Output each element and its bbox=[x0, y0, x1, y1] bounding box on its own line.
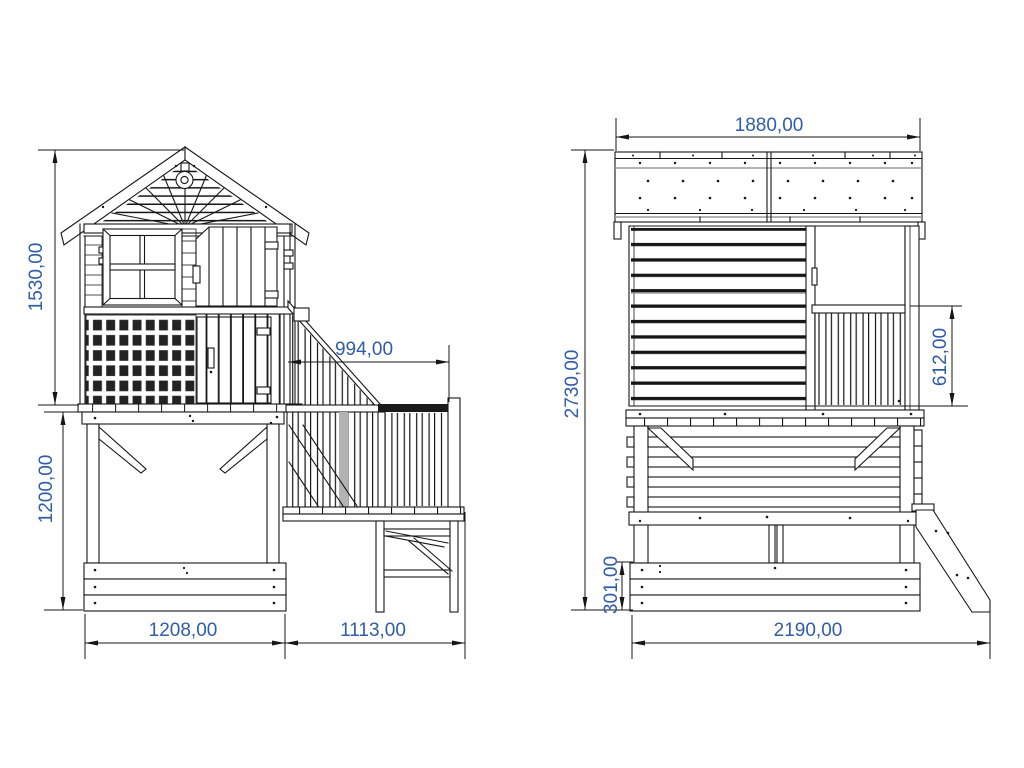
slide-body bbox=[916, 510, 990, 612]
lower-door-hinge-top bbox=[257, 328, 270, 335]
rear-view-slide bbox=[912, 504, 990, 612]
upper-door-latch bbox=[193, 266, 200, 283]
door-jamb bbox=[806, 226, 815, 412]
dim-label-sandbox-height: 301,00 bbox=[601, 556, 622, 614]
gable-peak-block bbox=[181, 163, 189, 171]
playhouse-elevation-drawing: 1530,00 1200,00 994,00 1208,00 1113,00 bbox=[0, 0, 1024, 768]
brace-left bbox=[99, 427, 146, 473]
rear-view-deck bbox=[626, 410, 924, 426]
wall-mid-rail bbox=[84, 307, 295, 314]
brace-right bbox=[220, 427, 267, 473]
dim-label-stair-run: 994,00 bbox=[335, 339, 393, 360]
lower-door-hinge-bottom bbox=[257, 387, 270, 394]
stair-understructure bbox=[287, 412, 379, 507]
corner-post-right bbox=[905, 226, 919, 412]
side-view-staircase bbox=[286, 301, 381, 507]
door-opening bbox=[905, 226, 919, 412]
rear-view-substructure bbox=[627, 426, 922, 563]
dim-label-house-width: 1208,00 bbox=[149, 620, 218, 641]
lattice-panel bbox=[86, 315, 196, 404]
side-view-deck bbox=[78, 404, 302, 424]
landing-handrail bbox=[378, 404, 454, 412]
technical-drawing-canvas: 1530,00 1200,00 994,00 1208,00 1113,00 bbox=[0, 0, 1024, 768]
dim-label-railing-height: 612,00 bbox=[930, 328, 951, 386]
rear-view: 1880,00 2730,00 612,00 301,00 2190,00 bbox=[562, 115, 990, 659]
dim-label-house-height: 1530,00 bbox=[26, 243, 47, 312]
landing-post bbox=[448, 398, 460, 508]
side-view: 1530,00 1200,00 994,00 1208,00 1113,00 bbox=[26, 147, 465, 659]
dim-label-roof-width: 1880,00 bbox=[735, 115, 804, 136]
ladder-rung-bottom bbox=[384, 570, 450, 577]
door-handle bbox=[812, 268, 817, 285]
window-mid-rail bbox=[110, 264, 175, 270]
window bbox=[103, 229, 182, 305]
lower-door-handle bbox=[208, 348, 214, 368]
dim-label-stair-width: 1113,00 bbox=[340, 620, 406, 641]
roof-end-cap-left bbox=[614, 222, 621, 239]
post-left bbox=[634, 426, 648, 563]
upper-door-hinge-top bbox=[265, 242, 278, 249]
bottom-rail bbox=[629, 512, 921, 525]
upper-door bbox=[193, 227, 293, 306]
stair-top-step bbox=[294, 308, 309, 321]
upper-door-hinge-bottom bbox=[265, 291, 278, 298]
rear-view-sandbox bbox=[630, 563, 920, 611]
landing-balusters bbox=[385, 413, 446, 506]
side-view-posts bbox=[87, 424, 279, 563]
side-view-ladder bbox=[376, 521, 458, 612]
side-view-sandbox bbox=[84, 563, 286, 611]
stair-gray-slat bbox=[339, 412, 348, 507]
plank-wall bbox=[631, 228, 806, 406]
dim-label-total-height: 2730,00 bbox=[562, 350, 583, 419]
side-view-lower-wall bbox=[86, 314, 283, 404]
dim-label-total-width: 2190,00 bbox=[774, 620, 843, 641]
dim-label-base-height: 1200,00 bbox=[36, 455, 57, 524]
rear-view-wall bbox=[629, 226, 919, 412]
rear-railing bbox=[812, 305, 905, 405]
post-right bbox=[900, 426, 914, 563]
